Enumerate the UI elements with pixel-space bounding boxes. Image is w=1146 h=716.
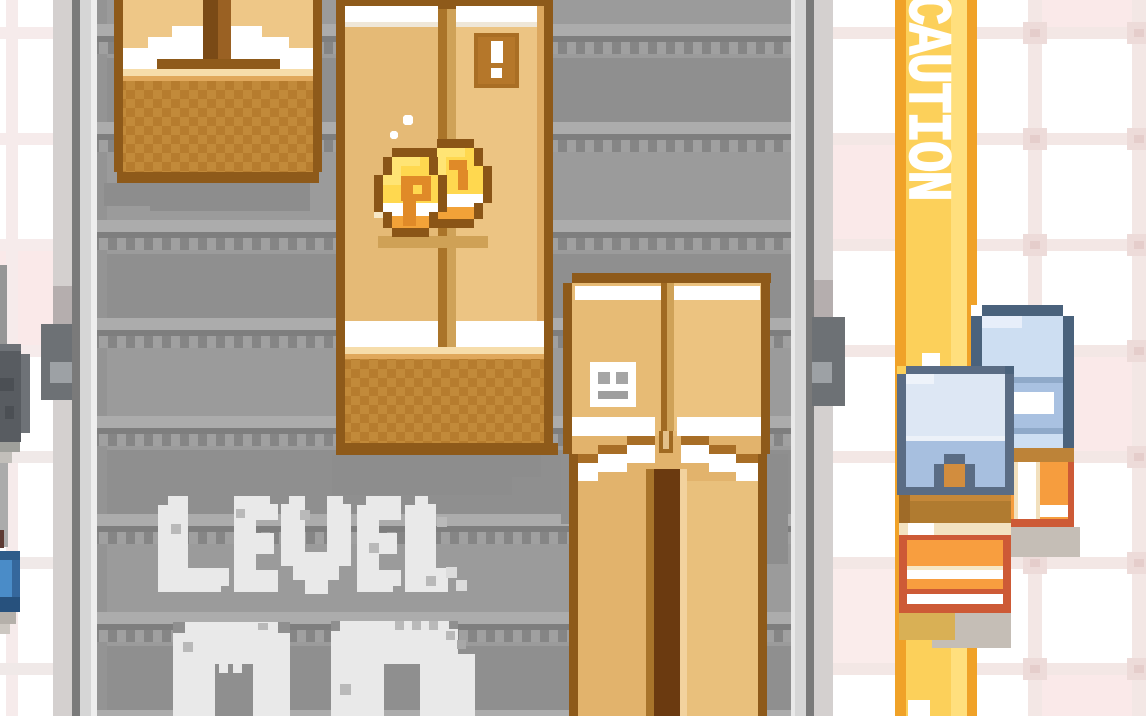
svg-text:CAUTION: CAUTION <box>891 0 960 200</box>
